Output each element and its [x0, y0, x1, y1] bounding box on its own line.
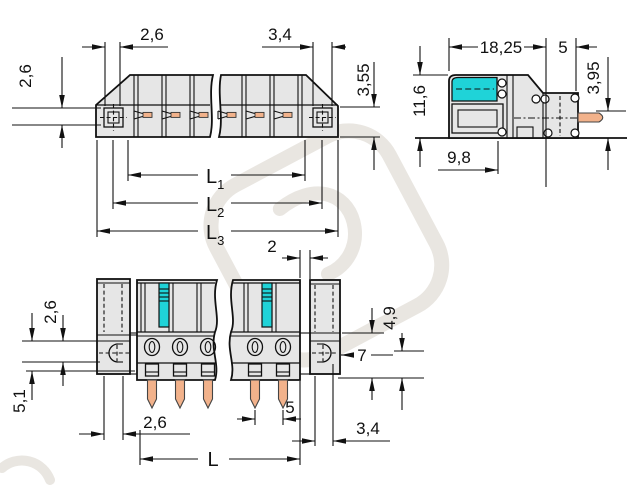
- dim-label: 2: [267, 237, 276, 256]
- dim-label: 3,95: [584, 61, 603, 94]
- dim-label: 3,4: [268, 25, 292, 44]
- front-solder-pins: [148, 380, 288, 408]
- dim-label: 5,1: [10, 389, 29, 413]
- dim-label: 9,8: [447, 148, 471, 167]
- side-dim-depth: 9,8: [438, 141, 498, 174]
- drawing-page: 2,6 3,4 2,6 3,55: [0, 0, 627, 489]
- plan-flange-hole-right: [309, 104, 336, 131]
- dim-label: 2,6: [41, 300, 60, 324]
- front-body-left: [137, 280, 217, 380]
- dim-label: 3,55: [354, 63, 373, 96]
- dim-label: 2,6: [140, 25, 164, 44]
- solder-pin: [578, 113, 603, 122]
- side-view: 18,25 5 3,95 11,6 9,8: [410, 38, 627, 187]
- dim-label: 5: [285, 398, 294, 417]
- plan-dim-side-left: 2,6: [12, 57, 101, 148]
- dim-label: 2,6: [143, 413, 167, 432]
- dim-label: L1: [206, 166, 224, 192]
- front-dim-gap: 2: [267, 237, 328, 279]
- dim-label: 5: [558, 38, 567, 57]
- watermark-logo: [2, 115, 458, 480]
- plan-flange-hole-left: [100, 104, 127, 131]
- front-view: 2 2,6 5,1 2,6: [10, 237, 424, 471]
- front-dim-pitch: 5: [237, 398, 301, 425]
- dim-label: 4,9: [380, 306, 399, 330]
- dim-label: 3,4: [356, 419, 380, 438]
- front-flange-left: [97, 279, 137, 374]
- plan-body-right: [219, 75, 338, 137]
- technical-drawing: 2,6 3,4 2,6 3,55: [0, 0, 627, 489]
- front-dim-flange-bottom: 2,6: [79, 376, 190, 440]
- dim-label: L: [207, 449, 218, 471]
- side-dim-height: 11,6: [410, 46, 448, 167]
- dim-label: 18,25: [480, 38, 523, 57]
- dim-label: 2,6: [16, 64, 35, 88]
- plan-dim-side-right: 3,55: [340, 62, 380, 170]
- front-dim-hole: 3,4: [292, 364, 390, 446]
- plan-view: 2,6 3,4 2,6 3,55: [12, 25, 380, 248]
- front-dim-upper-left: 2,6: [22, 300, 100, 386]
- dim-label: 11,6: [410, 85, 429, 117]
- front-dim-step: 4,9: [338, 306, 424, 410]
- dim-label: 7: [357, 346, 366, 365]
